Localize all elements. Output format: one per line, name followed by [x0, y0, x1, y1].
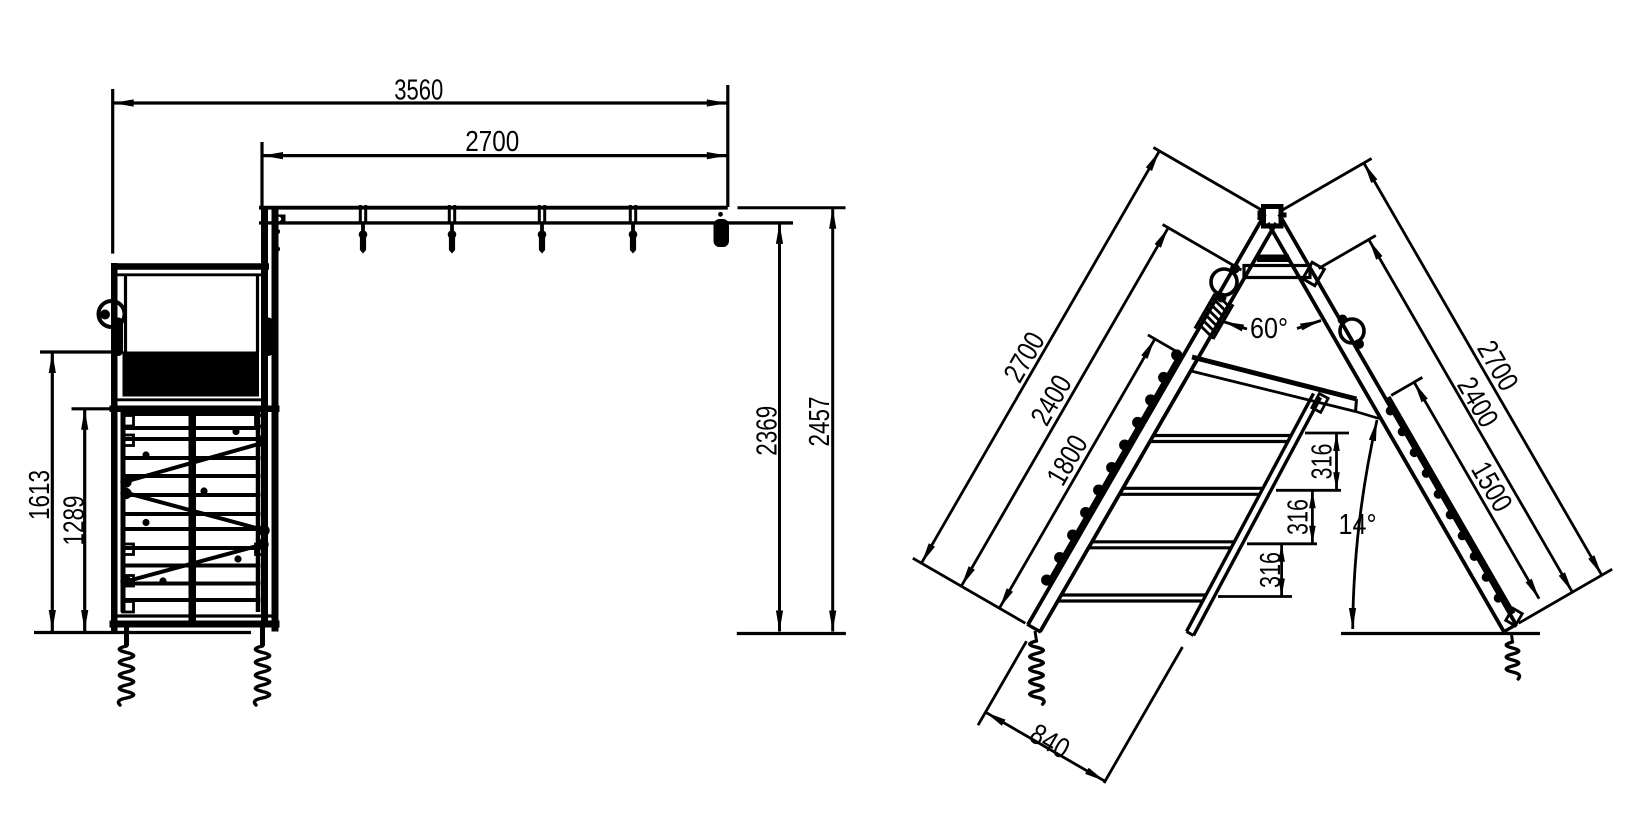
svg-text:60°: 60°	[1250, 313, 1288, 345]
svg-text:316: 316	[1255, 552, 1287, 588]
svg-text:14°: 14°	[1339, 509, 1377, 541]
svg-text:1289: 1289	[59, 496, 91, 546]
svg-text:2457: 2457	[804, 397, 836, 447]
svg-text:2369: 2369	[751, 406, 783, 456]
svg-text:1613: 1613	[24, 470, 56, 520]
svg-text:2700: 2700	[465, 126, 519, 158]
svg-text:3560: 3560	[394, 75, 443, 107]
svg-text:316: 316	[1283, 499, 1315, 535]
svg-text:316: 316	[1307, 444, 1339, 480]
